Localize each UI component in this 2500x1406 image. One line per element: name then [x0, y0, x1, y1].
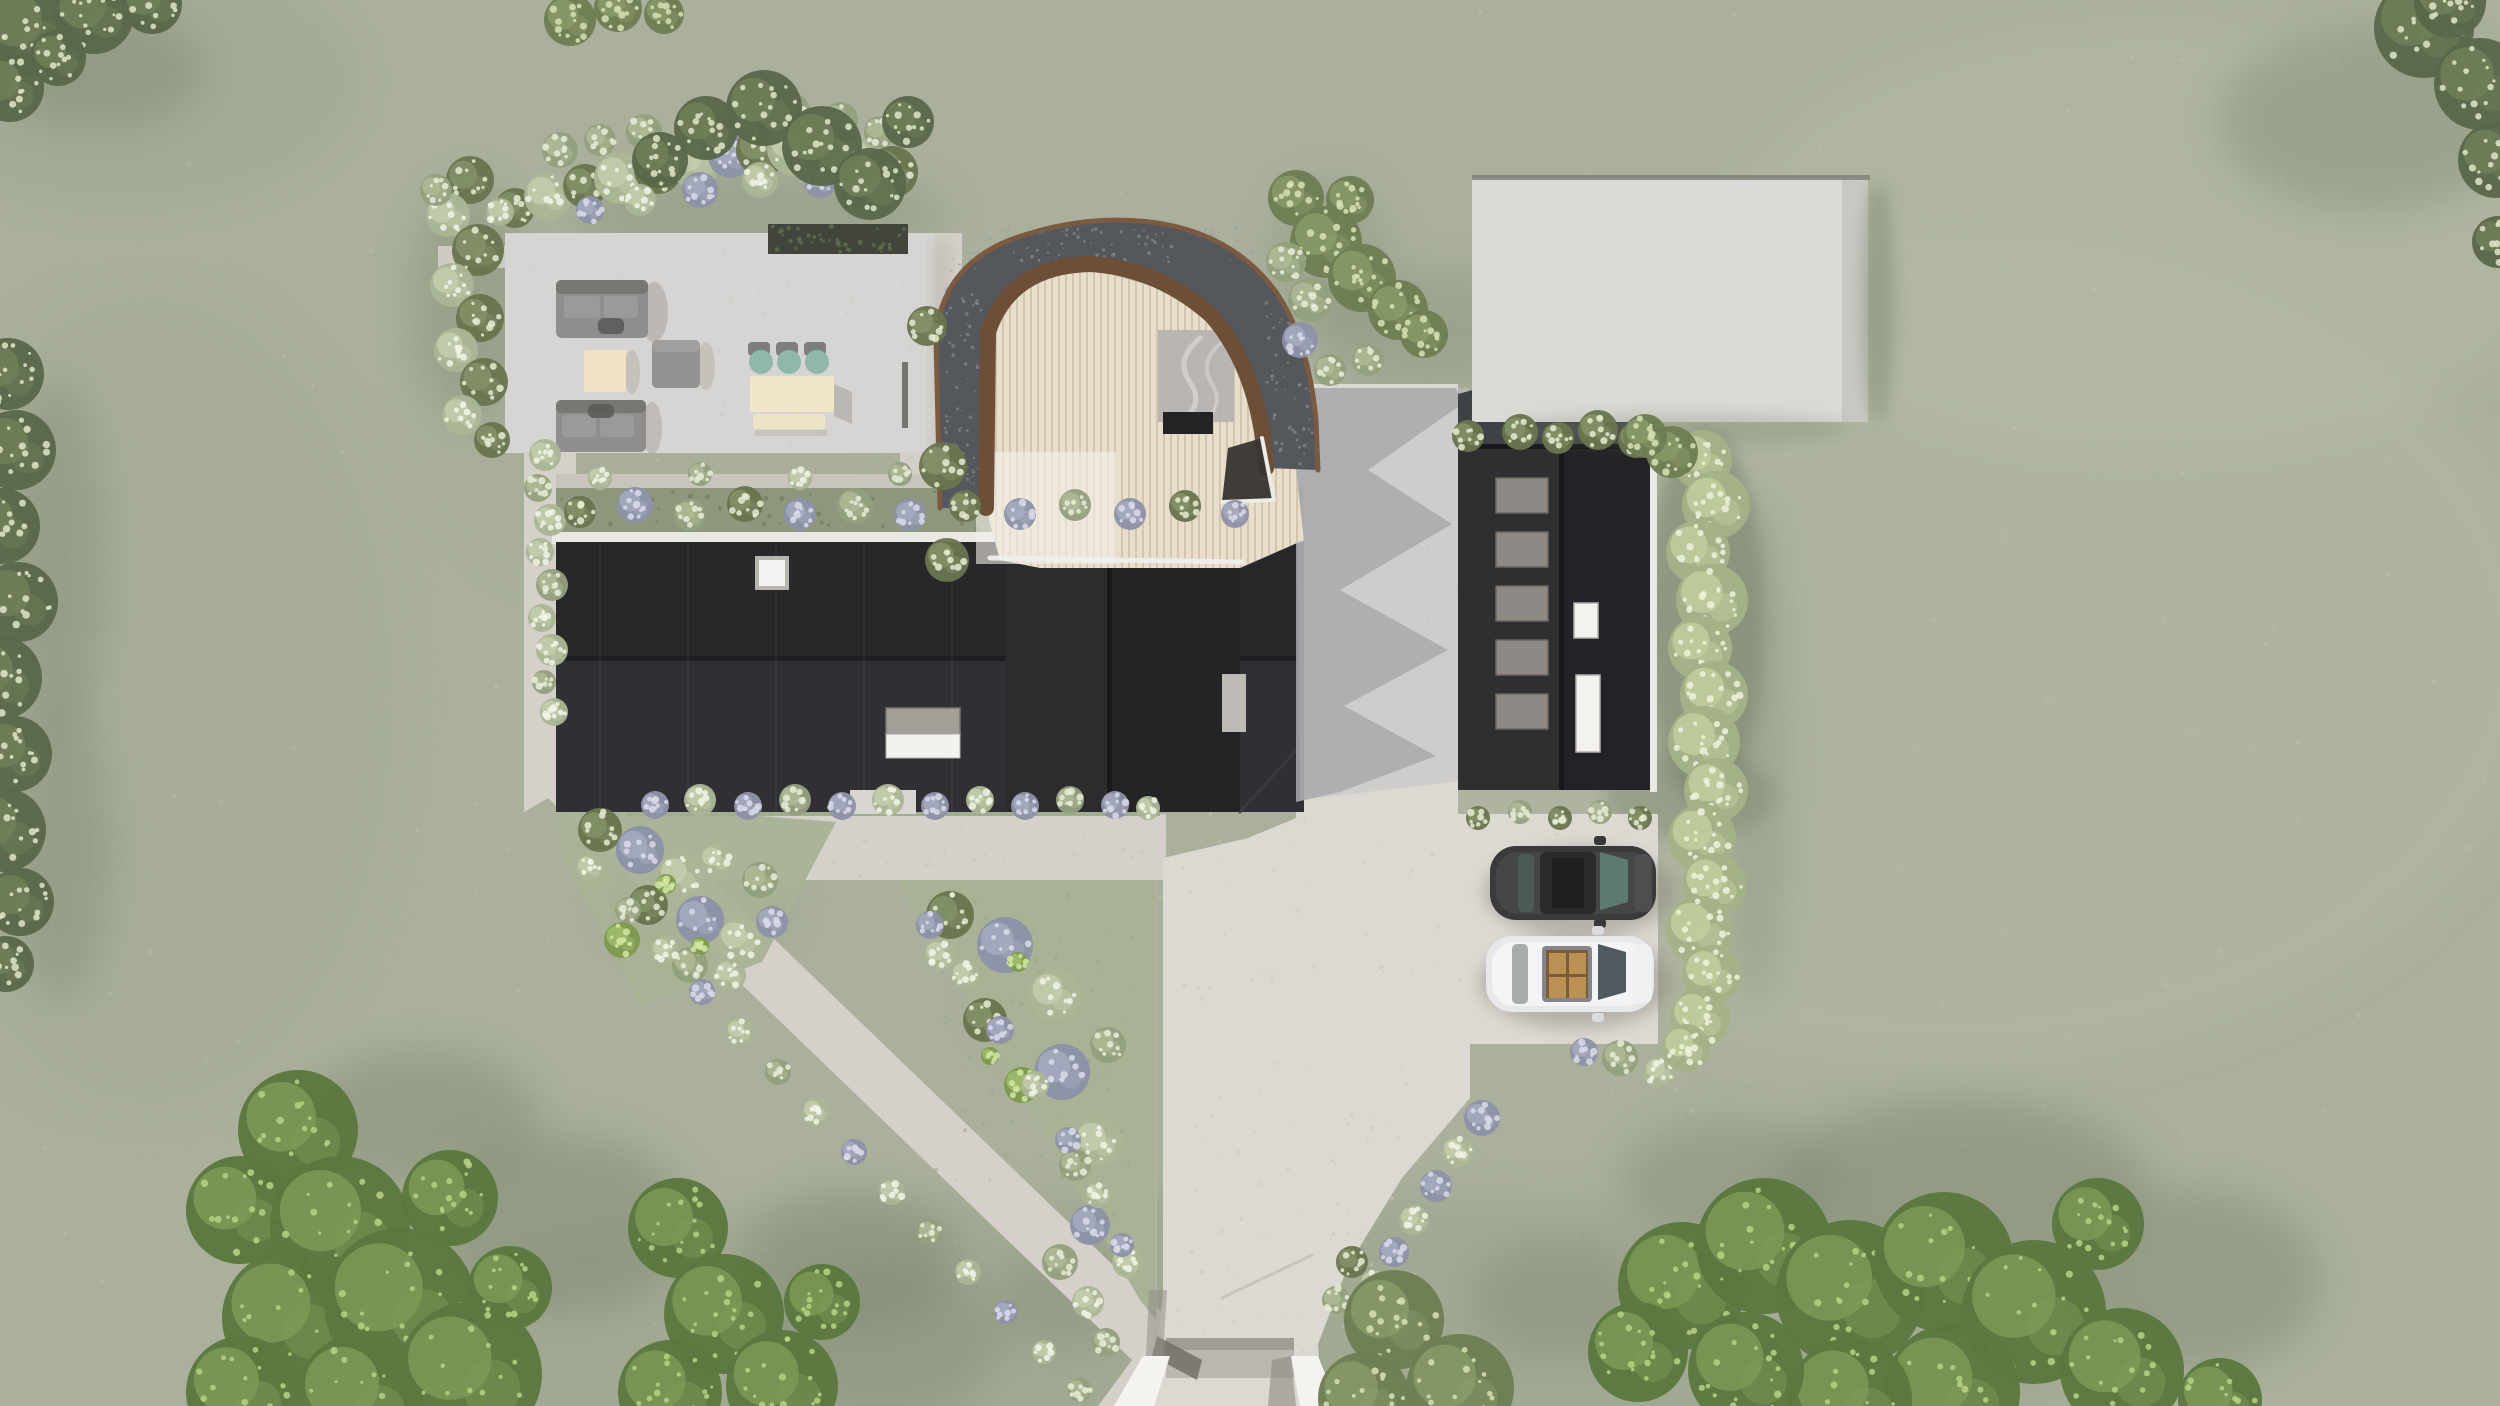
- shrub-speckle: [1355, 359, 1359, 363]
- tree-speckle: [2457, 87, 2462, 92]
- shrub-speckle: [636, 839, 642, 845]
- green-roof-texture-dot: [809, 493, 812, 496]
- shrub-speckle: [1045, 1080, 1048, 1083]
- shrub-speckle: [796, 510, 800, 514]
- tree-speckle: [1716, 915, 1723, 922]
- tree-speckle: [33, 914, 39, 920]
- planter-plants-dot: [880, 251, 882, 253]
- tree-speckle: [1750, 1240, 1754, 1244]
- lawn-texture-dot: [516, 988, 520, 992]
- gravel-band-texture-dot: [1309, 356, 1311, 358]
- shrub-speckle: [669, 945, 673, 949]
- shrub-speckle: [932, 335, 940, 343]
- terrace-texture-dot: [909, 346, 912, 349]
- shrub-purple: [682, 172, 718, 208]
- tree-speckle: [1607, 1370, 1611, 1374]
- tree-speckle: [1713, 812, 1716, 815]
- island-texture-dot: [1038, 1098, 1041, 1101]
- shrub-speckle: [628, 862, 634, 868]
- shrub-speckle: [892, 1180, 899, 1187]
- shrub-purple: [1004, 498, 1036, 530]
- gravel-band-texture-dot: [1298, 462, 1301, 465]
- shrub-speckle: [1095, 1032, 1101, 1038]
- tree-speckle: [253, 1237, 259, 1243]
- tree-speckle: [1707, 492, 1714, 499]
- tree-speckle: [1674, 467, 1678, 471]
- path-texture-dot: [1122, 847, 1125, 850]
- shrub-speckle: [1328, 357, 1333, 362]
- tree-speckle: [1314, 283, 1321, 290]
- shrub-speckle: [935, 793, 942, 800]
- driveway-texture-dot: [1226, 1267, 1228, 1269]
- shrub-speckle: [1083, 1218, 1090, 1225]
- tree-speckle: [1378, 320, 1385, 327]
- plaza-texture-dot: [1288, 843, 1290, 845]
- shrub-speckle: [533, 457, 539, 463]
- shrub-speckle: [532, 188, 535, 191]
- driveway-texture-dot: [1397, 1136, 1401, 1140]
- shrub-speckle: [731, 1039, 736, 1044]
- shrub-speckle: [1073, 1142, 1081, 1150]
- green-roof-texture-dot: [882, 525, 885, 528]
- tree-speckle: [376, 1192, 383, 1199]
- tree-speckle: [1943, 1300, 1946, 1303]
- tree-speckle: [334, 1254, 337, 1257]
- island-texture-dot: [1059, 937, 1062, 940]
- shrub-speckle: [549, 660, 555, 666]
- shrub-speckle: [550, 704, 558, 712]
- tree-speckle: [2140, 1387, 2146, 1393]
- tree-speckle: [927, 119, 931, 123]
- shrub-speckle: [585, 828, 589, 832]
- shrub-white: [714, 959, 746, 991]
- shrub-speckle: [542, 559, 549, 566]
- shrub-speckle: [727, 952, 734, 959]
- tree-speckle: [210, 1385, 216, 1391]
- tree-speckle: [1, 651, 5, 655]
- gravel-band-texture-dot: [1166, 256, 1169, 259]
- shrub-speckle: [581, 212, 586, 217]
- shrub-speckle: [883, 797, 887, 801]
- tree-speckle: [2491, 152, 2498, 159]
- tree-speckle: [232, 1216, 239, 1223]
- tree-speckle: [831, 1309, 837, 1315]
- shrub-speckle: [827, 187, 830, 190]
- tree-speckle: [1850, 1349, 1856, 1355]
- tree-speckle: [735, 122, 741, 128]
- tree-speckle: [638, 1238, 641, 1241]
- tree-speckle: [1713, 949, 1719, 955]
- tree-speckle: [1869, 1369, 1875, 1375]
- lawn-texture-dot: [1158, 895, 1163, 900]
- planter-plants-dot: [781, 234, 783, 236]
- driveway-texture-dot: [1400, 1069, 1402, 1071]
- shrub-speckle: [1103, 1193, 1108, 1198]
- tree-speckle: [2098, 1214, 2104, 1220]
- shrub-sage: [542, 132, 578, 168]
- shrub-speckle: [1104, 1030, 1111, 1037]
- shrub-speckle: [1409, 1207, 1417, 1215]
- shrub-speckle: [551, 175, 554, 178]
- shrub-speckle: [588, 859, 594, 865]
- shrub-speckle: [944, 549, 950, 555]
- shrub-speckle: [491, 241, 494, 244]
- tree-speckle: [2077, 1213, 2080, 1216]
- lawn-texture-dot: [60, 210, 62, 212]
- tree-speckle: [7, 427, 10, 430]
- path-texture-dot: [1068, 863, 1071, 866]
- shrub-speckle: [975, 973, 978, 976]
- lawn-texture-dot: [108, 992, 111, 995]
- shrub-speckle: [544, 713, 551, 720]
- lawn-texture-dot: [237, 1040, 240, 1043]
- tree-speckle: [1723, 887, 1730, 894]
- tree-speckle: [358, 1322, 365, 1329]
- shrub-speckle: [1428, 1172, 1433, 1177]
- tree-speckle: [446, 1195, 453, 1202]
- shrub-speckle: [756, 179, 762, 185]
- shrub-speckle: [650, 890, 655, 895]
- shrub-speckle: [663, 887, 669, 893]
- shrub-speckle: [804, 523, 809, 528]
- shrub-speckle: [1467, 809, 1474, 816]
- shrub-speckle: [1573, 1057, 1579, 1063]
- tree-speckle: [1693, 721, 1697, 725]
- shrub-speckle: [630, 118, 637, 125]
- chimney: [1163, 412, 1213, 434]
- tree-speckle: [754, 1281, 761, 1288]
- shrub-speckle: [969, 802, 976, 809]
- shrub-speckle: [694, 470, 698, 474]
- shrub-speckle: [427, 194, 430, 197]
- tree-speckle: [1414, 295, 1419, 300]
- tree-speckle: [634, 6, 638, 10]
- tree-speckle: [1688, 1242, 1694, 1248]
- driveway-texture-dot: [1199, 1140, 1201, 1142]
- shrub-speckle: [648, 127, 653, 132]
- lawn-texture-dot: [292, 747, 296, 751]
- shrub-speckle: [1039, 978, 1046, 985]
- plaza-texture-dot: [1250, 977, 1253, 980]
- shrub-white: [802, 1098, 830, 1126]
- tree-speckle: [1306, 251, 1310, 255]
- tree-speckle: [1679, 1051, 1683, 1055]
- shrub-speckle: [935, 564, 942, 571]
- tree-speckle: [0, 670, 8, 678]
- tree-speckle: [1831, 1382, 1838, 1389]
- tree-speckle: [1706, 913, 1713, 920]
- tree-speckle: [883, 170, 890, 177]
- tree-speckle: [1699, 1385, 1705, 1391]
- tree-speckle: [2440, 85, 2446, 91]
- shrub-speckle: [597, 866, 601, 870]
- shrub-speckle: [460, 354, 467, 361]
- tree-speckle: [1296, 256, 1299, 259]
- tree-vivid: [784, 1264, 860, 1340]
- shrub-speckle: [954, 564, 961, 571]
- tree-speckle: [1359, 269, 1363, 273]
- shrub-speckle: [1367, 346, 1371, 350]
- green-roof-texture-dot: [688, 494, 693, 499]
- tree-speckle: [1478, 1380, 1481, 1383]
- tree-speckle: [795, 1316, 801, 1322]
- tree-speckle: [666, 18, 672, 24]
- tree-speckle: [1679, 1001, 1683, 1005]
- tree-speckle: [1336, 200, 1343, 207]
- driveway-texture-dot: [1346, 1209, 1349, 1212]
- shrub-speckle: [621, 937, 626, 942]
- tree-speckle: [1715, 631, 1720, 636]
- shrub-speckle: [1102, 1052, 1106, 1056]
- tree-speckle: [804, 1310, 811, 1317]
- tree-speckle: [1305, 197, 1312, 204]
- shrub-sage: [888, 462, 912, 486]
- shrub-speckle: [707, 186, 714, 193]
- tree-speckle: [2004, 1265, 2008, 1269]
- tree-speckle: [20, 463, 25, 468]
- tree-speckle: [307, 1193, 310, 1196]
- shrub-speckle: [1009, 1304, 1012, 1307]
- driveway-texture-dot: [1232, 1320, 1235, 1323]
- tree-speckle: [1279, 256, 1284, 261]
- shrub-speckle: [498, 432, 505, 439]
- tree-speckle: [330, 1347, 337, 1354]
- tree-speckle: [1393, 1315, 1399, 1321]
- tree-speckle: [1336, 193, 1340, 197]
- shrub-speckle: [1472, 1123, 1476, 1127]
- shrub-speckle: [1108, 1345, 1111, 1348]
- tree-speckle: [43, 891, 48, 896]
- shrub-speckle: [1096, 1131, 1102, 1137]
- shrub-speckle: [1601, 802, 1604, 805]
- tree-speckle: [858, 178, 864, 184]
- terrace-texture-dot: [696, 299, 698, 301]
- driveway-texture-dot: [1180, 1323, 1182, 1325]
- tree-speckle: [103, 28, 106, 31]
- shrub-speckle: [1112, 1139, 1116, 1143]
- tree-speckle: [1725, 795, 1731, 801]
- tree-speckle: [9, 101, 16, 108]
- tree-speckle: [1376, 1332, 1380, 1336]
- tree-speckle: [22, 768, 26, 772]
- shrub-speckle: [732, 970, 738, 976]
- terrace-texture-dot: [718, 349, 721, 352]
- gravel-band-texture-dot: [1055, 258, 1057, 260]
- lawn-texture-dot: [2162, 617, 2165, 620]
- shrub-speckle: [609, 826, 614, 831]
- shrub-speckle: [620, 914, 626, 920]
- gravel-band-texture-dot: [1265, 301, 1268, 304]
- tree-speckle: [753, 1395, 756, 1398]
- shrub-speckle: [533, 617, 538, 622]
- tree-speckle: [646, 164, 650, 168]
- tree-speckle: [1462, 1347, 1468, 1353]
- shrub-speckle: [464, 409, 471, 416]
- tree-speckle: [1366, 1325, 1374, 1333]
- tree-speckle: [697, 1201, 703, 1207]
- shrub-speckle: [1357, 365, 1360, 368]
- shrub-speckle: [1049, 1256, 1054, 1261]
- tree-speckle: [785, 114, 792, 121]
- shrub-speckle: [798, 466, 805, 473]
- shrub-speckle: [931, 929, 934, 932]
- shrub-speckle: [603, 188, 609, 194]
- terrace-texture-dot: [850, 299, 853, 302]
- shrub-speckle: [1128, 501, 1135, 508]
- shrub-speckle: [694, 807, 697, 810]
- tree-speckle: [522, 1266, 528, 1272]
- tree-speckle: [1637, 416, 1643, 422]
- shrub-speckle: [488, 390, 493, 395]
- driveway-texture-dot: [1234, 1276, 1236, 1278]
- shrub-speckle: [950, 565, 955, 570]
- tree-speckle: [22, 18, 28, 24]
- tree-speckle: [24, 26, 30, 32]
- tree-speckle: [1273, 197, 1278, 202]
- tree-speckle: [347, 1203, 351, 1207]
- car-dark-rear-glass: [1518, 854, 1534, 912]
- plaza-texture-dot: [1231, 886, 1233, 888]
- shrub-speckle: [996, 1021, 1000, 1025]
- planter-plants-dot: [872, 243, 876, 247]
- gravel-band-texture-dot: [1230, 260, 1232, 262]
- shrub-speckle: [747, 951, 754, 958]
- terrace-texture-dot: [835, 310, 837, 312]
- tree-speckle: [1720, 1278, 1723, 1281]
- shrub-speckle: [1112, 1345, 1119, 1352]
- tree-speckle: [2492, 79, 2495, 82]
- lawn-texture-dot: [206, 1060, 209, 1063]
- shrub-speckle: [1605, 432, 1609, 436]
- shrub-speckle: [1345, 1295, 1350, 1300]
- shrub-speckle: [1447, 1156, 1450, 1159]
- coffee-table: [584, 350, 626, 392]
- tree-mid: [1326, 176, 1374, 224]
- gravel-band-texture-dot: [966, 477, 969, 480]
- tree-speckle: [18, 109, 22, 113]
- gravel-band-texture-dot: [968, 324, 972, 328]
- shrub-speckle: [1578, 1039, 1585, 1046]
- island-texture-dot: [1133, 985, 1135, 987]
- shrub-speckle: [1044, 1355, 1050, 1361]
- tree-speckle: [68, 73, 72, 77]
- tree-speckle: [811, 1402, 815, 1406]
- shrub-speckle: [544, 650, 549, 655]
- shrub-speckle: [529, 543, 533, 547]
- planter-plants-dot: [836, 241, 841, 246]
- lawn-texture-dot: [654, 1323, 656, 1325]
- tree-speckle: [852, 185, 859, 192]
- island-texture-dot: [984, 916, 987, 919]
- tree-speckle: [1684, 836, 1689, 841]
- shrub-speckle: [527, 476, 534, 483]
- tree-speckle: [17, 58, 24, 65]
- driveway-texture-dot: [1289, 1121, 1291, 1123]
- shrub-speckle: [659, 896, 664, 901]
- shrub-speckle: [455, 167, 462, 174]
- tree-speckle: [83, 23, 87, 27]
- shrub-speckle: [881, 1183, 886, 1188]
- tree-speckle: [1717, 589, 1721, 593]
- tree-speckle: [50, 62, 57, 69]
- tree-speckle: [25, 571, 29, 575]
- tree-speckle: [739, 1324, 745, 1330]
- shrub-speckle: [934, 482, 939, 487]
- shrub-speckle: [707, 194, 713, 200]
- tree-speckle: [1687, 921, 1691, 925]
- shrub-speckle: [852, 516, 857, 521]
- path-texture-dot: [828, 872, 831, 875]
- tree-speckle: [806, 1304, 811, 1309]
- shrub-speckle: [717, 862, 720, 865]
- gravel-band-texture-dot: [983, 234, 985, 236]
- tree-speckle: [1676, 910, 1681, 915]
- shrub-speckle: [538, 477, 545, 484]
- tree-speckle: [266, 1182, 273, 1189]
- tree-speckle: [1379, 1295, 1385, 1301]
- shrub-speckle: [918, 518, 924, 524]
- island-texture-dot: [963, 1128, 967, 1132]
- shrub-speckle: [542, 580, 546, 584]
- shrub-purple: [921, 792, 949, 820]
- shrub-speckle: [1082, 1132, 1087, 1137]
- shrub-speckle: [1080, 495, 1084, 499]
- shrub-speckle: [568, 515, 573, 520]
- tree-speckle: [1307, 229, 1314, 236]
- shrub-speckle: [729, 946, 732, 949]
- shrub-speckle: [1008, 962, 1013, 967]
- shrub-speckle: [1644, 808, 1647, 811]
- shrub-speckle: [1561, 815, 1565, 819]
- tree-speckle: [1695, 899, 1700, 904]
- gravel-band-texture-dot: [974, 247, 976, 249]
- island-texture-dot: [1091, 989, 1094, 992]
- terrace-texture-dot: [868, 417, 871, 420]
- tree-speckle: [1682, 1006, 1688, 1012]
- tree-speckle: [741, 114, 746, 119]
- shrub-sage: [420, 174, 452, 206]
- lawn-texture-dot: [2421, 1366, 2423, 1368]
- tree-speckle: [659, 181, 663, 185]
- tree-speckle: [36, 50, 40, 54]
- tree-speckle: [891, 179, 894, 182]
- shrub-speckle: [646, 916, 651, 921]
- lawn-texture-dot: [2295, 819, 2299, 823]
- gravel-band-texture-dot: [1235, 227, 1239, 231]
- canopy-light-panel: [976, 452, 1116, 564]
- tree-speckle: [2, 692, 9, 699]
- plaza-texture-dot: [1308, 881, 1310, 883]
- tree-speckle: [677, 120, 683, 126]
- island-texture-dot: [959, 1070, 962, 1073]
- shrub-speckle: [639, 135, 642, 138]
- island-texture-dot: [1112, 1213, 1117, 1218]
- tree-speckle: [241, 1399, 248, 1406]
- tree-speckle: [1856, 1353, 1860, 1357]
- tree-speckle: [408, 1251, 413, 1256]
- shrub-speckle: [1057, 801, 1063, 807]
- tree-speckle: [1293, 272, 1300, 279]
- shrub-olive: [925, 538, 969, 582]
- shrub-speckle: [1477, 814, 1484, 821]
- shrub-speckle: [1305, 350, 1310, 355]
- plaza-texture-dot: [1217, 858, 1219, 860]
- tree-speckle: [440, 1207, 445, 1212]
- shrub-speckle: [1386, 1239, 1392, 1245]
- roof-hatch: [1222, 674, 1246, 732]
- tree-speckle: [724, 1299, 730, 1305]
- shrub-speckle: [1392, 1249, 1396, 1253]
